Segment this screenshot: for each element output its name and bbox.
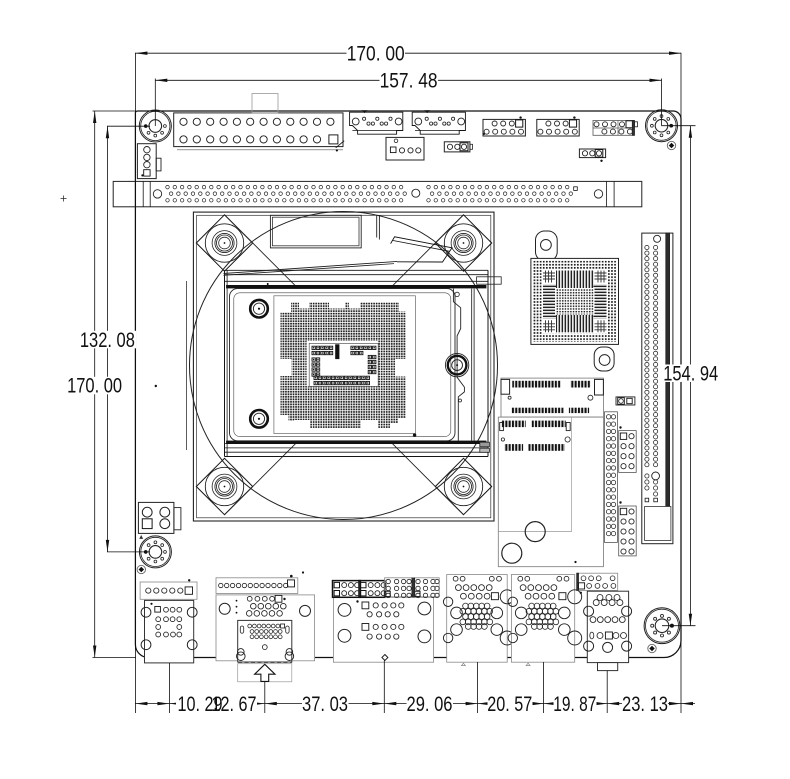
svg-text:29. 06: 29. 06: [407, 693, 453, 716]
svg-text:20. 57: 20. 57: [487, 693, 532, 716]
svg-text:19. 87: 19. 87: [553, 693, 596, 716]
svg-text:157. 48: 157. 48: [380, 70, 438, 93]
svg-text:132. 08: 132. 08: [80, 329, 135, 352]
svg-text:170. 00: 170. 00: [347, 43, 405, 66]
svg-text:37. 03: 37. 03: [302, 693, 348, 716]
svg-text:23. 13: 23. 13: [622, 693, 668, 716]
svg-text:170. 00: 170. 00: [67, 375, 122, 398]
svg-text:12. 67: 12. 67: [212, 693, 257, 716]
svg-text:154. 94: 154. 94: [663, 363, 718, 386]
